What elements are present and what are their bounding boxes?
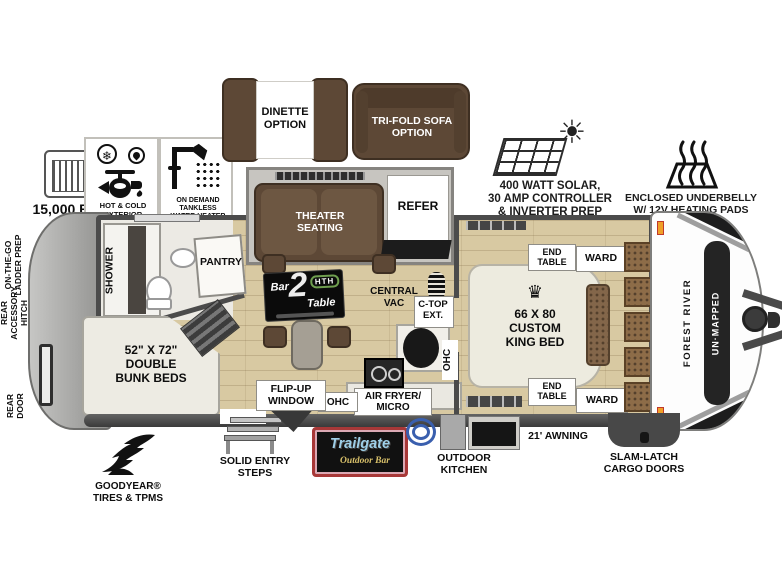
cargo-doors-label: SLAM-LATCH CARGO DOORS xyxy=(584,451,704,475)
bar-stool-right xyxy=(327,326,351,348)
dining-chair-right xyxy=(372,254,396,274)
king-bed-label: 66 X 80 CUSTOM KING BED xyxy=(492,308,578,349)
outdoor-kitchen-label: OUTDOOR KITCHEN xyxy=(422,452,506,476)
goodyear-wingfoot-icon xyxy=(96,428,160,480)
brand-model-label: UN·MAPPED xyxy=(711,249,724,399)
rear-door-label: REAR DOOR xyxy=(6,384,30,428)
tailgate-bar-logo: Trailgate Outdoor Bar xyxy=(312,427,408,477)
floorplan-canvas: 15,000 BTU AC ❄ HOT & COLD EXTERIOR SPRA… xyxy=(0,0,782,586)
bedroom-wall-upper xyxy=(454,220,459,298)
tongue-jack-wheel xyxy=(742,306,768,332)
bar2table-bar: Bar xyxy=(270,281,289,294)
trifold-sofa-option: TRI-FOLD SOFA OPTION xyxy=(352,83,470,160)
bar2table-hth-badge: HTH xyxy=(310,274,340,289)
brand-model-badge: UN·MAPPED xyxy=(704,241,730,405)
entry-steps xyxy=(224,417,284,455)
end-table-rear: END TABLE xyxy=(528,378,576,406)
tailgate-name: Trailgate xyxy=(315,436,405,453)
cooktop xyxy=(364,358,404,388)
bar2table-num: 2 xyxy=(287,266,308,306)
dinette-option: DINETTE OPTION xyxy=(222,78,348,162)
ohc-vertical-label: OHC xyxy=(442,340,458,380)
storage-baskets xyxy=(624,242,652,414)
hitch-coupler xyxy=(768,312,780,328)
outdoor-kitchen-griddle xyxy=(406,414,522,450)
bar2table-table: Table xyxy=(307,296,336,309)
bed-pillow xyxy=(586,284,610,366)
flip-up-window-label: FLIP-UP WINDOW xyxy=(256,380,326,411)
theater-slideout: THEATER SEATING REFER xyxy=(246,167,454,265)
pantry-label: PANTRY xyxy=(196,256,246,268)
goodyear-label: GOODYEAR® TIRES & TPMS xyxy=(76,481,180,504)
bedroom-window-top xyxy=(466,221,526,230)
bar-stool-left xyxy=(263,326,287,348)
shower-label: SHOWER xyxy=(104,226,119,316)
marker-light-top xyxy=(657,221,664,235)
sun-icon: ☀ xyxy=(552,114,592,151)
kitchen-sink xyxy=(403,328,439,368)
bath-sink xyxy=(170,248,196,268)
tailgate-sub: Outdoor Bar xyxy=(323,456,407,467)
ctop-ext-text: C-TOP EXT. xyxy=(414,300,452,322)
cargo-door xyxy=(608,413,680,447)
air-fryer-label: AIR FRYER/ MICRO xyxy=(354,388,432,416)
toilet-seat xyxy=(146,298,172,310)
theater-label: THEATER SEATING xyxy=(273,210,367,234)
bar-table xyxy=(291,320,323,370)
bath-window-top xyxy=(134,214,200,222)
awning-label: 21' AWNING xyxy=(518,430,598,442)
bar2table-logo: Bar 2 Table HTH xyxy=(263,269,345,322)
underbelly-icon xyxy=(652,138,730,190)
ward-rear: WARD xyxy=(576,388,628,413)
entry-steps-label: SOLID ENTRY STEPS xyxy=(208,455,302,479)
refer-label: REFER xyxy=(389,200,447,214)
rear-door-handle xyxy=(39,344,53,406)
bedroom-window-bottom xyxy=(466,396,522,407)
crown-icon: ♛ xyxy=(500,282,570,303)
bunk-beds-label: 52" X 72" DOUBLE BUNK BEDS xyxy=(92,344,210,385)
dining-chair-left xyxy=(262,254,286,274)
faucet-icon xyxy=(86,139,161,201)
dinette-label: DINETTE OPTION xyxy=(252,106,318,131)
trifold-sofa-label: TRI-FOLD SOFA OPTION xyxy=(364,115,460,139)
brand-maker-label: FOREST RIVER xyxy=(683,261,697,385)
end-table-front: END TABLE xyxy=(528,244,576,271)
roof-vent xyxy=(275,172,365,180)
ward-front: WARD xyxy=(576,246,626,272)
